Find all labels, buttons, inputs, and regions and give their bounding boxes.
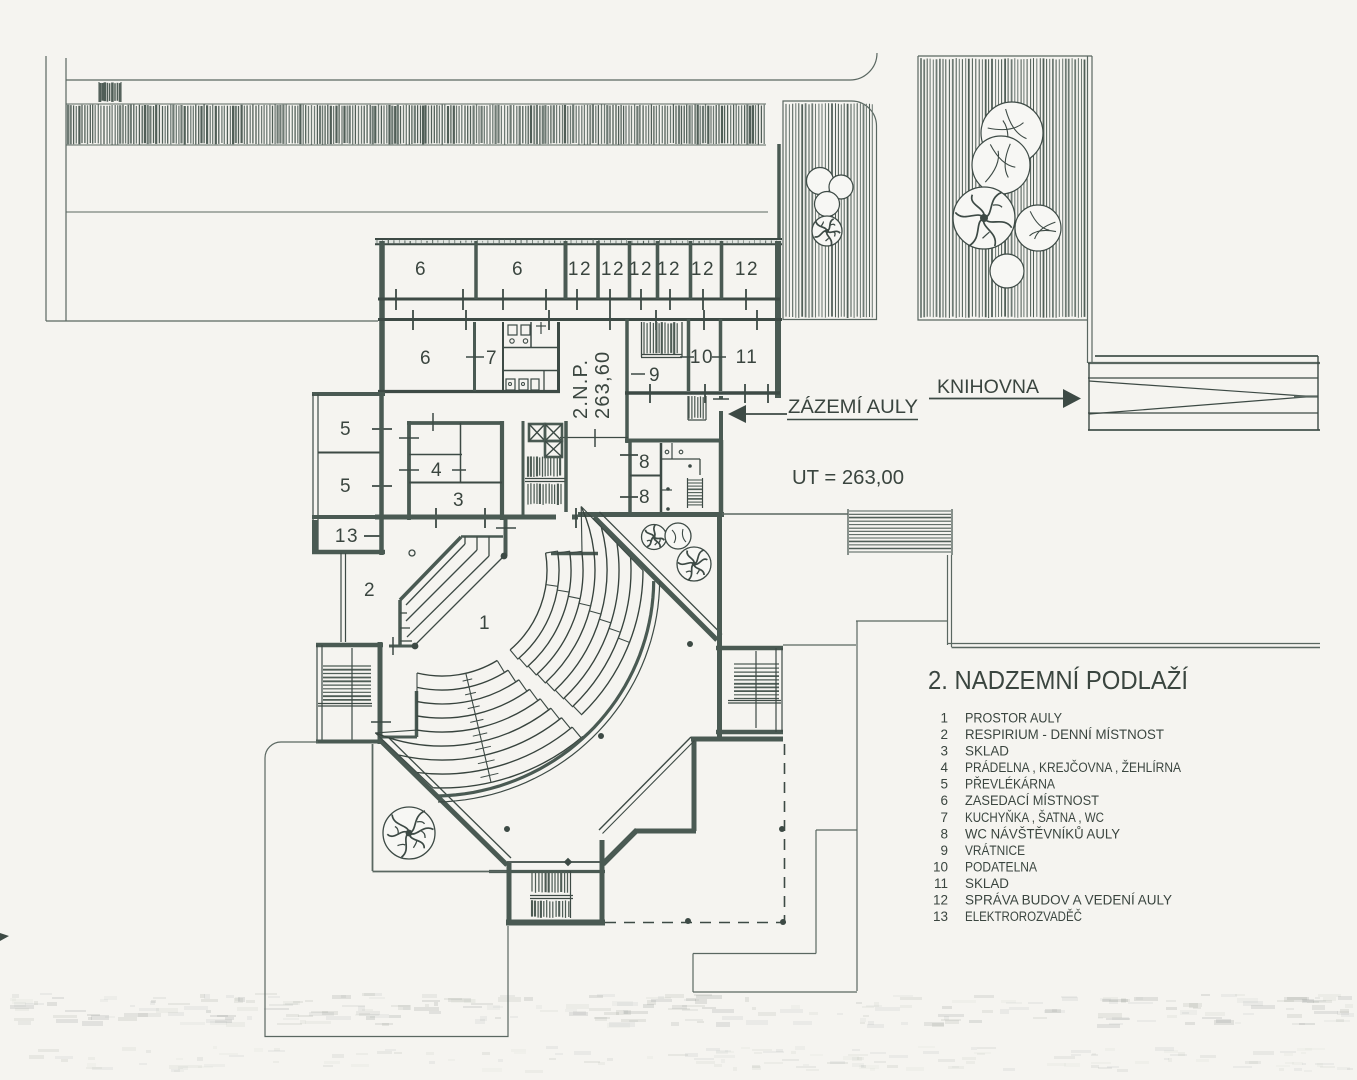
svg-text:7: 7: [940, 810, 948, 825]
svg-text:1: 1: [940, 711, 948, 726]
svg-text:ZASEDACÍ MÍSTNOST: ZASEDACÍ MÍSTNOST: [965, 793, 1099, 808]
svg-text:1: 1: [479, 613, 491, 634]
svg-text:WC NÁVŠTĚVNÍKŮ AULY: WC NÁVŠTĚVNÍKŮ AULY: [965, 826, 1120, 841]
svg-text:VRÁTNICE: VRÁTNICE: [965, 843, 1025, 858]
svg-text:PRÁDELNA , KREJČOVNA , ŽEHLÍRN: PRÁDELNA , KREJČOVNA , ŽEHLÍRNA: [965, 760, 1181, 775]
svg-text:12: 12: [568, 259, 592, 280]
svg-text:3: 3: [940, 744, 948, 759]
svg-text:8: 8: [639, 452, 651, 473]
svg-text:12: 12: [601, 259, 625, 280]
svg-text:ELEKTROROZVADĚČ: ELEKTROROZVADĚČ: [965, 909, 1082, 924]
svg-text:5: 5: [340, 419, 352, 440]
svg-text:9: 9: [649, 365, 661, 386]
svg-text:UT = 263,00: UT = 263,00: [792, 467, 904, 489]
svg-text:RESPIRIUM - DENNÍ MÍSTNOST: RESPIRIUM - DENNÍ MÍSTNOST: [965, 727, 1164, 742]
svg-text:4: 4: [940, 760, 948, 775]
svg-text:11: 11: [934, 876, 948, 891]
svg-text:12: 12: [735, 259, 759, 280]
svg-text:6: 6: [415, 259, 427, 280]
svg-text:SKLAD: SKLAD: [965, 876, 1009, 891]
svg-text:9: 9: [940, 843, 948, 858]
svg-text:SPRÁVA BUDOV A VEDENÍ AULY: SPRÁVA BUDOV A VEDENÍ AULY: [965, 893, 1172, 908]
svg-text:12: 12: [629, 259, 653, 280]
svg-text:KNIHOVNA: KNIHOVNA: [937, 377, 1039, 398]
svg-text:PŘEVLÉKÁRNA: PŘEVLÉKÁRNA: [965, 777, 1055, 792]
svg-text:PROSTOR AULY: PROSTOR AULY: [965, 711, 1062, 726]
svg-text:6: 6: [512, 259, 524, 280]
svg-text:12: 12: [933, 893, 948, 908]
svg-text:263,60: 263,60: [592, 351, 614, 419]
svg-text:12: 12: [657, 259, 681, 280]
svg-text:13: 13: [933, 909, 948, 924]
svg-text:8: 8: [940, 826, 948, 841]
svg-text:PODATELNA: PODATELNA: [965, 859, 1037, 874]
svg-text:2: 2: [364, 580, 376, 601]
svg-text:KUCHYŇKA , ŠATNA , WC: KUCHYŇKA , ŠATNA , WC: [965, 810, 1104, 825]
svg-text:4: 4: [431, 460, 443, 481]
svg-text:11: 11: [736, 347, 759, 368]
svg-text:7: 7: [486, 348, 498, 369]
svg-text:ZÁZEMÍ AULY: ZÁZEMÍ AULY: [788, 395, 918, 418]
svg-text:12: 12: [691, 259, 715, 280]
svg-text:5: 5: [340, 476, 352, 497]
svg-text:5: 5: [940, 777, 948, 792]
svg-text:SKLAD: SKLAD: [965, 744, 1009, 759]
svg-text:6: 6: [420, 348, 432, 369]
svg-text:3: 3: [453, 490, 465, 511]
svg-text:10: 10: [933, 859, 948, 874]
svg-text:2. NADZEMNÍ PODLAŽÍ: 2. NADZEMNÍ PODLAŽÍ: [928, 665, 1189, 695]
svg-text:8: 8: [639, 487, 651, 508]
svg-text:13: 13: [335, 526, 359, 547]
svg-text:2: 2: [940, 727, 948, 742]
svg-text:6: 6: [940, 793, 948, 808]
svg-text:2.N.P.: 2.N.P.: [570, 359, 592, 419]
